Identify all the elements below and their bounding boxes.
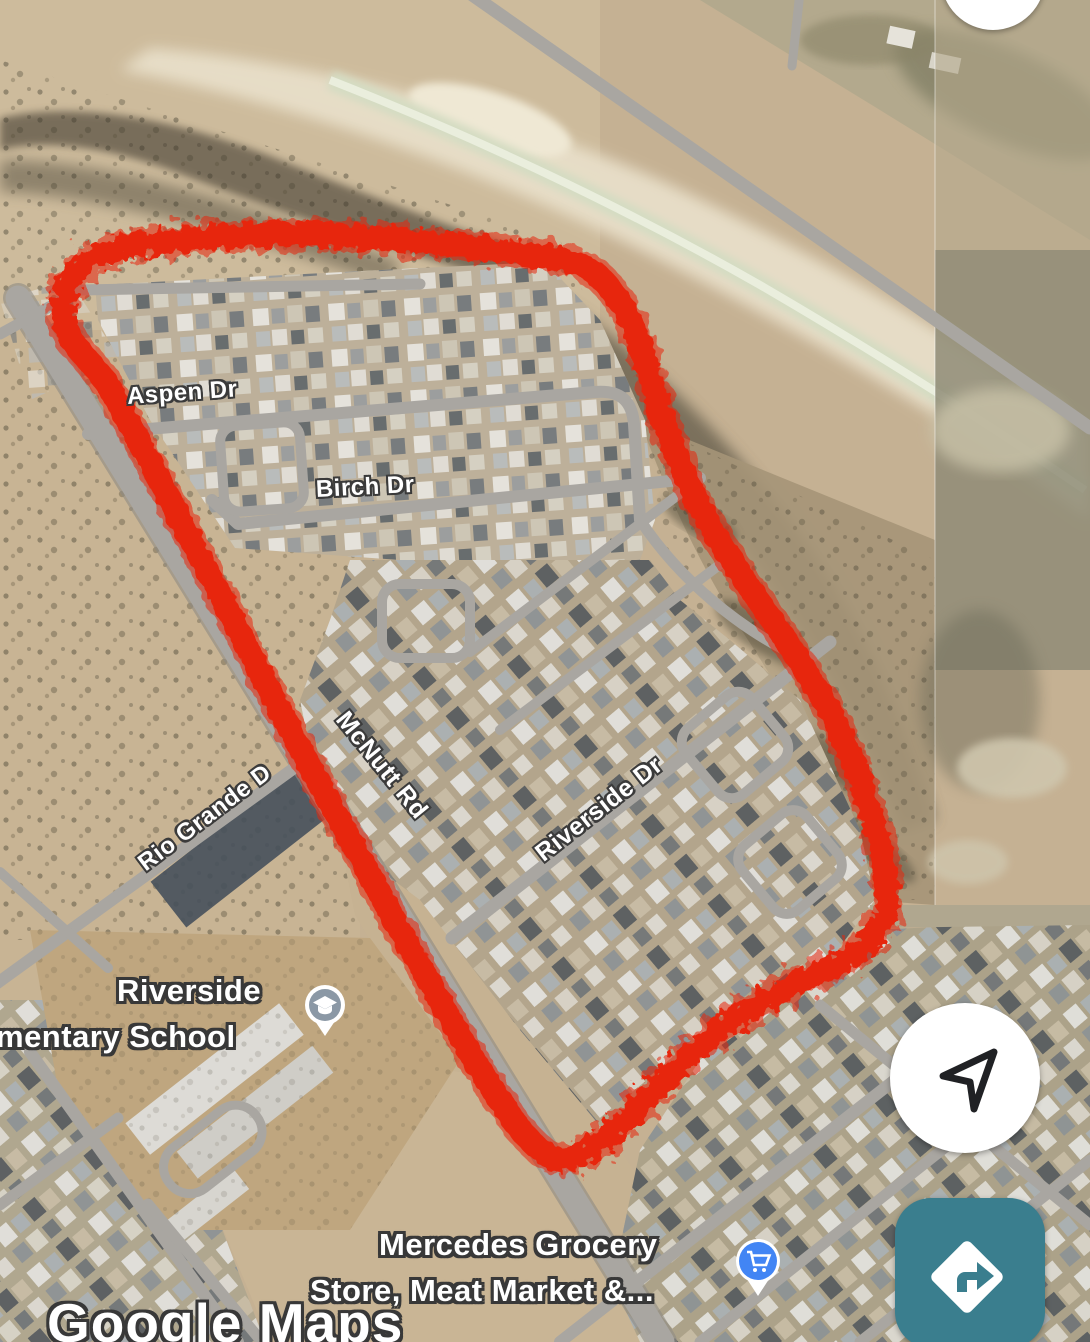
street-label-birch: Birch Dr	[315, 471, 415, 504]
my-location-button[interactable]	[890, 1003, 1040, 1153]
turn-right-diamond-icon	[895, 1198, 1045, 1342]
grocery-pin-icon[interactable]	[734, 1238, 782, 1300]
directions-button[interactable]	[895, 1198, 1045, 1342]
school-label-line1: Riverside	[117, 973, 261, 1009]
grocery-label-line1: Mercedes Grocery	[379, 1227, 658, 1263]
google-maps-watermark: Google Maps	[47, 1291, 403, 1342]
school-label-line2: mentary School	[0, 1019, 236, 1055]
map-canvas[interactable]: Aspen Dr Birch Dr McNutt Rd Rio Grande D…	[0, 0, 1090, 1342]
school-pin-icon[interactable]	[303, 984, 347, 1040]
navigation-arrow-icon	[890, 1003, 1040, 1153]
